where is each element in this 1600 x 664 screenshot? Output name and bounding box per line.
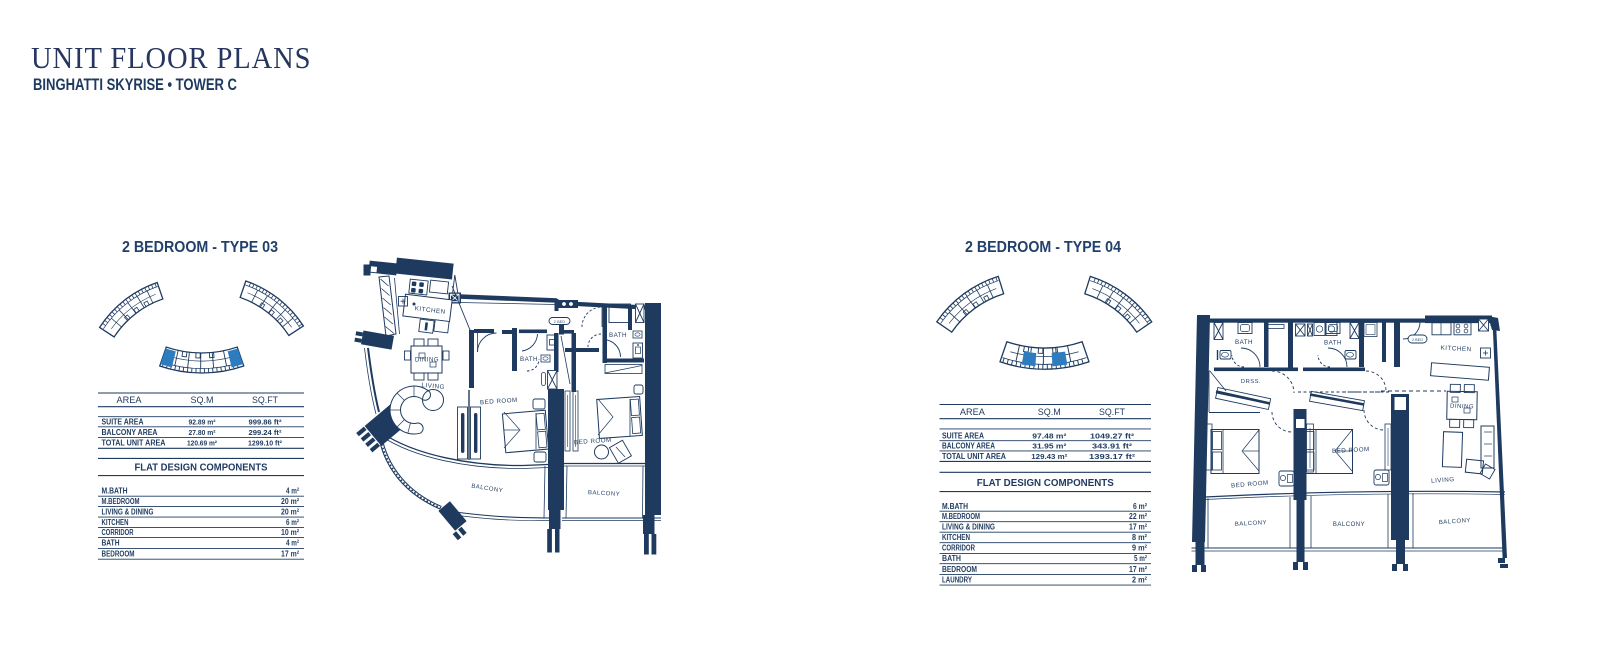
svg-text:BALCONY: BALCONY [1235,520,1267,528]
svg-text:22 m²: 22 m² [1129,512,1147,521]
svg-text:343.91 ft²: 343.91 ft² [1092,442,1133,451]
svg-text:BATH: BATH [942,554,961,563]
svg-text:10 m²: 10 m² [281,528,299,537]
svg-text:BATH: BATH [102,539,120,548]
svg-text:LIVING & DINING: LIVING & DINING [942,522,995,531]
svg-text:AREA: AREA [960,407,986,418]
svg-text:4 m²: 4 m² [286,486,299,495]
svg-text:DINING: DINING [415,358,439,364]
svg-text:BED ROOM: BED ROOM [1231,479,1269,489]
svg-text:SUITE AREA: SUITE AREA [102,418,144,427]
svg-text:1299.10 ft²: 1299.10 ft² [248,439,283,448]
svg-text:27.80 m²: 27.80 m² [189,428,216,437]
svg-text:LIVING: LIVING [1431,476,1455,485]
svg-text:9 m²: 9 m² [1132,544,1147,553]
svg-text:92.89 m²: 92.89 m² [189,418,216,427]
svg-text:BATH: BATH [1235,339,1253,346]
svg-text:31.95 m²: 31.95 m² [1032,442,1067,451]
svg-text:BALCONY: BALCONY [588,490,620,498]
svg-text:M.BATH: M.BATH [102,486,128,495]
svg-text:M.BEDROOM: M.BEDROOM [102,497,140,506]
svg-text:AREA: AREA [117,395,143,406]
svg-text:SQ.FT: SQ.FT [252,395,278,406]
svg-text:8 m²: 8 m² [1132,533,1147,542]
svg-text:SQ.M: SQ.M [1038,407,1061,418]
svg-text:BEDROOM: BEDROOM [102,549,135,558]
svg-text:4 m²: 4 m² [286,539,299,548]
svg-text:BALCONY AREA: BALCONY AREA [942,442,995,451]
svg-text:KITCHEN: KITCHEN [942,533,970,542]
svg-text:LAUNDRY: LAUNDRY [942,575,973,584]
svg-text:CORRIDOR: CORRIDOR [102,528,134,537]
svg-text:BEDROOM: BEDROOM [942,565,977,574]
svg-text:1393.17 ft²: 1393.17 ft² [1089,452,1136,461]
svg-text:17 m²: 17 m² [1129,565,1147,574]
svg-text:299.24 ft²: 299.24 ft² [249,428,283,437]
svg-text:BALCONY: BALCONY [471,484,504,495]
svg-text:BATH: BATH [520,356,538,363]
svg-text:5 m²: 5 m² [1134,554,1147,563]
svg-text:SQ.M: SQ.M [191,395,214,406]
svg-text:1049.27 ft²: 1049.27 ft² [1090,431,1135,440]
svg-text:17 m²: 17 m² [1129,522,1147,531]
svg-text:6 m²: 6 m² [286,518,299,527]
svg-text:BATH: BATH [1324,340,1342,347]
svg-text:KITCHEN: KITCHEN [1440,345,1471,354]
svg-text:KITCHEN: KITCHEN [102,518,129,527]
svg-text:M.BATH: M.BATH [942,502,968,511]
svg-text:BALCONY: BALCONY [1439,518,1472,526]
svg-text:6 m²: 6 m² [1133,502,1147,511]
svg-text:FLAT DESIGN COMPONENTS: FLAT DESIGN COMPONENTS [135,463,268,474]
svg-text:SQ.FT: SQ.FT [1099,407,1125,418]
svg-text:DRSS.: DRSS. [1241,379,1261,385]
svg-text:97.48 m²: 97.48 m² [1032,431,1067,440]
svg-text:BED ROOM: BED ROOM [1332,446,1370,455]
svg-text:2 m²: 2 m² [1132,575,1147,584]
svg-text:FLAT DESIGN COMPONENTS: FLAT DESIGN COMPONENTS [977,478,1114,489]
svg-text:M.BEDROOM: M.BEDROOM [942,512,980,521]
svg-text:120.69 m²: 120.69 m² [187,439,217,448]
svg-text:2 BED: 2 BED [1412,338,1423,342]
svg-text:BATH: BATH [609,332,627,339]
svg-text:BALCONY: BALCONY [1333,522,1365,528]
svg-text:999.86 ft²: 999.86 ft² [249,418,283,427]
svg-text:TOTAL UNIT AREA: TOTAL UNIT AREA [942,452,1006,461]
svg-text:TOTAL UNIT AREA: TOTAL UNIT AREA [102,439,166,448]
svg-text:20 m²: 20 m² [281,497,299,506]
svg-text:SUITE AREA: SUITE AREA [942,431,984,440]
svg-text:BALCONY AREA: BALCONY AREA [102,428,158,437]
svg-text:LIVING & DINING: LIVING & DINING [102,508,154,517]
svg-text:BED ROOM: BED ROOM [480,397,518,407]
svg-text:129.43 m²: 129.43 m² [1031,452,1068,461]
svg-text:DINING: DINING [1450,404,1474,411]
svg-text:20 m²: 20 m² [281,508,299,517]
svg-text:CORRIDOR: CORRIDOR [942,544,975,553]
svg-text:17 m²: 17 m² [281,549,299,558]
svg-text:2 BED: 2 BED [554,320,566,324]
